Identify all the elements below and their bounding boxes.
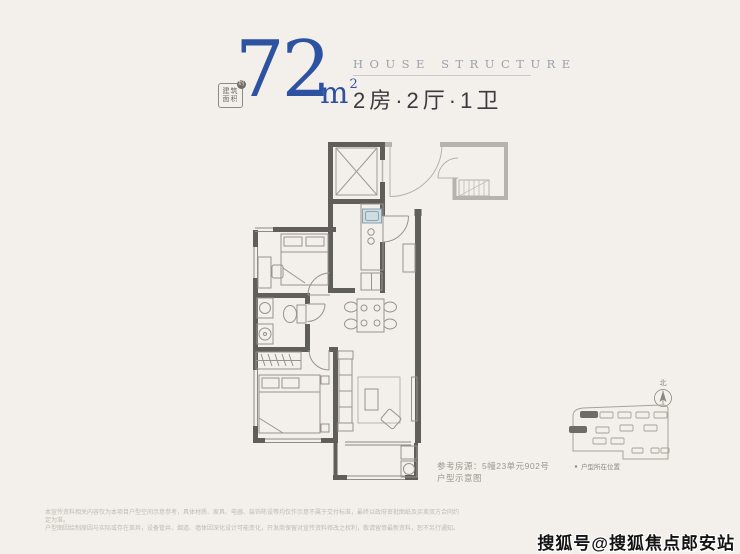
header-right: HOUSE STRUCTURE 2房·2厅·1卫 <box>353 57 535 115</box>
unit-walls <box>253 202 422 481</box>
watermark: 搜狐号@搜狐焦点郎安站 <box>537 529 735 554</box>
neighbor-door-arc <box>438 158 458 178</box>
disclaimer-line1: 本宣传资料相关内容仅为本项目户型空间示意参考，具体材质、家具、电器、装饰陈设等均… <box>45 509 463 525</box>
master-bedroom <box>256 352 329 433</box>
master-door-arc <box>309 350 329 370</box>
bedroom2-door-arc <box>308 273 330 295</box>
siteplan: 北 户型所在位置 <box>556 352 694 480</box>
desk <box>258 257 271 288</box>
entry-door-arc <box>383 216 409 242</box>
dining <box>345 299 397 332</box>
area-unit-m: m <box>320 76 348 111</box>
nightstand <box>321 376 329 384</box>
disclaimer: 本宣传资料相关内容仅为本项目户型空间示意参考，具体材质、家具、电器、装饰陈设等均… <box>45 509 463 533</box>
reference-note: 户型示意图 <box>437 473 549 485</box>
disclaimer-line2: 户型图因绘制原因与实际或存在差异，设备管井、烟道、墙体因深化设计可能变化，开发商… <box>45 525 463 533</box>
bedroom2-bed <box>281 234 328 285</box>
floorplan-poster: 建筑 面积 约 72 m2 HOUSE STRUCTURE 2房·2厅·1卫 <box>0 0 740 554</box>
living-room <box>338 351 417 431</box>
subtitle-en: HOUSE STRUCTURE <box>353 57 535 71</box>
rug <box>358 377 400 423</box>
lobby-door-arc <box>390 145 442 197</box>
compass: 北 <box>655 379 672 407</box>
area-value: 72 <box>235 28 328 112</box>
site-legend-label: 户型所在位置 <box>581 462 621 471</box>
reference-unit: 参考房源：5幢23单元902号 <box>437 461 549 473</box>
elevator <box>328 142 385 204</box>
bedroom2 <box>258 234 328 288</box>
area-unit: m2 <box>320 76 357 111</box>
site-legend: 户型所在位置 <box>575 462 621 471</box>
entry-cabinet <box>403 244 415 272</box>
rooms-summary: 2房·2厅·1卫 <box>353 83 535 115</box>
site-buildings <box>593 412 669 453</box>
armchair <box>380 408 401 429</box>
subtitle-divider <box>353 75 531 76</box>
bath-door-arc <box>308 304 326 322</box>
dining-table <box>357 299 384 332</box>
compass-label: 北 <box>660 379 667 387</box>
toilet <box>297 305 306 323</box>
kitchen <box>361 204 415 290</box>
floorplan-drawing <box>225 130 535 502</box>
bathroom <box>257 298 306 344</box>
nightstand <box>321 424 329 432</box>
coffee-table <box>365 389 378 410</box>
balcony-slider <box>345 442 411 445</box>
door-arcs <box>308 216 409 370</box>
public-corridor <box>385 142 508 200</box>
reference-text: 参考房源：5幢23单元902号 户型示意图 <box>437 461 549 484</box>
